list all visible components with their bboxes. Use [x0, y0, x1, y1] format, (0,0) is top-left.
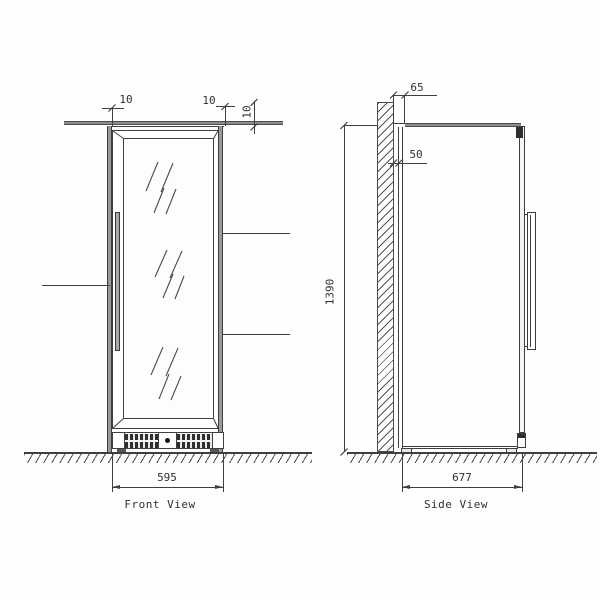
diagonal-lines-layer — [0, 0, 600, 600]
technical-drawing-canvas: 10 10 10 595 Front View — [0, 0, 600, 600]
glass-reflection-strokes — [146, 162, 184, 400]
dimension-oblique-ticks — [109, 92, 409, 456]
